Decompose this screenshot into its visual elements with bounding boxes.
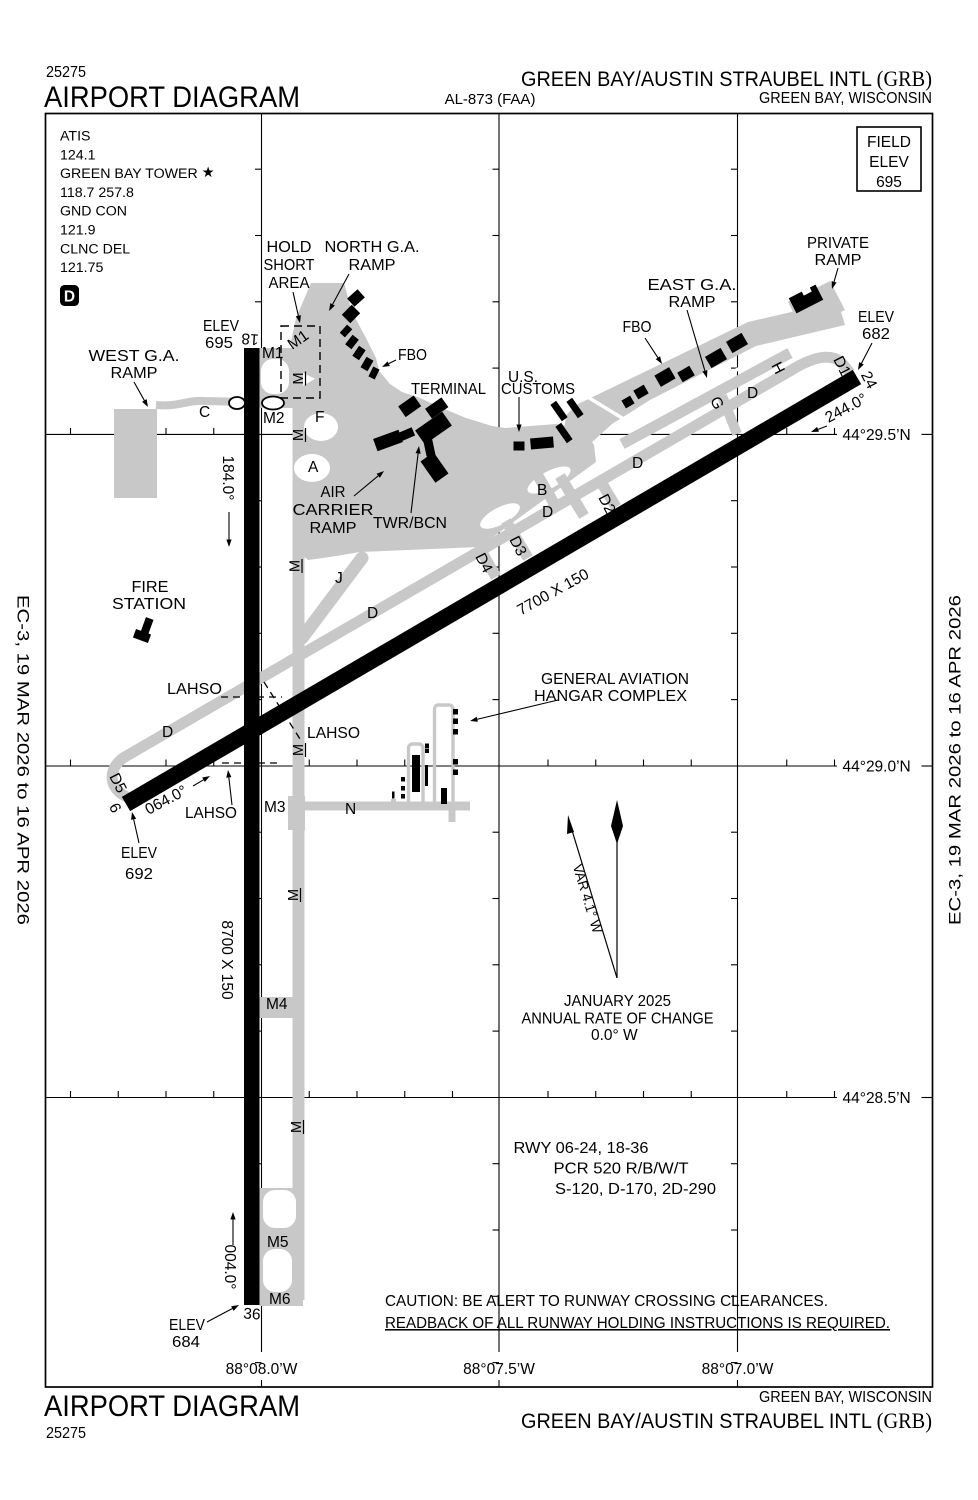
svg-text:44°28.5’N: 44°28.5’N xyxy=(843,1090,911,1107)
svg-text:CAUTION: BE ALERT TO RUNWAY CR: CAUTION: BE ALERT TO RUNWAY CROSSING CLE… xyxy=(385,1293,828,1310)
svg-text:ANNUAL RATE OF CHANGE: ANNUAL RATE OF CHANGE xyxy=(522,1011,714,1028)
svg-text:GND CON: GND CON xyxy=(60,204,127,220)
svg-text:ELEV: ELEV xyxy=(121,845,158,862)
svg-text:AIRPORT DIAGRAM: AIRPORT DIAGRAM xyxy=(44,81,300,114)
svg-text:M1: M1 xyxy=(262,345,284,362)
svg-text:M: M xyxy=(291,372,307,384)
svg-text:AL-873 (FAA): AL-873 (FAA) xyxy=(445,91,536,108)
svg-text:124.1: 124.1 xyxy=(60,147,96,163)
svg-text:GREEN BAY/AUSTIN STRAUBEL INTL: GREEN BAY/AUSTIN STRAUBEL INTL (GRB) xyxy=(521,66,932,91)
svg-text:88°07.0’W: 88°07.0’W xyxy=(702,1361,774,1378)
svg-text:READBACK OF ALL RUNWAY HOLDING: READBACK OF ALL RUNWAY HOLDING INSTRUCTI… xyxy=(385,1315,890,1332)
svg-text:ELEV: ELEV xyxy=(858,309,895,326)
svg-text:18: 18 xyxy=(241,329,259,347)
svg-text:M: M xyxy=(286,889,302,901)
svg-text:RAMP: RAMP xyxy=(349,257,396,274)
svg-text:ATIS: ATIS xyxy=(60,129,90,145)
svg-text:TERMINAL: TERMINAL xyxy=(411,381,486,398)
svg-text:GREEN BAY/AUSTIN STRAUBEL INTL: GREEN BAY/AUSTIN STRAUBEL INTL (GRB) xyxy=(521,1408,932,1433)
svg-text:EAST G.A.: EAST G.A. xyxy=(648,277,737,294)
svg-text:FBO: FBO xyxy=(623,319,652,336)
svg-text:GENERAL AVIATION: GENERAL AVIATION xyxy=(541,671,689,688)
svg-text:M: M xyxy=(291,429,307,441)
svg-text:M: M xyxy=(291,744,307,756)
svg-text:GREEN BAY, WISCONSIN: GREEN BAY, WISCONSIN xyxy=(759,90,932,107)
svg-text:J: J xyxy=(335,570,343,587)
svg-text:CUSTOMS: CUSTOMS xyxy=(501,381,575,398)
svg-text:004.0°: 004.0° xyxy=(221,1245,238,1290)
svg-text:M3: M3 xyxy=(264,799,286,816)
svg-text:STATION: STATION xyxy=(112,596,186,613)
svg-text:692: 692 xyxy=(125,866,153,883)
svg-text:88°07.5’W: 88°07.5’W xyxy=(463,1361,535,1378)
svg-text:SHORT: SHORT xyxy=(264,257,315,274)
svg-text:JANUARY 2025: JANUARY 2025 xyxy=(564,993,671,1010)
svg-text:LAHSO: LAHSO xyxy=(185,805,237,822)
svg-text:AIRPORT DIAGRAM: AIRPORT DIAGRAM xyxy=(44,1390,300,1423)
svg-text:FBO: FBO xyxy=(398,347,427,364)
svg-text:CARRIER: CARRIER xyxy=(293,502,374,519)
svg-text:FIELD: FIELD xyxy=(867,134,911,151)
svg-text:GREEN BAY TOWER ★: GREEN BAY TOWER ★ xyxy=(60,165,215,182)
svg-text:RAMP: RAMP xyxy=(815,252,862,269)
svg-text:A: A xyxy=(308,459,319,476)
svg-text:HANGAR COMPLEX: HANGAR COMPLEX xyxy=(534,688,688,705)
svg-text:682: 682 xyxy=(862,326,890,343)
svg-text:D: D xyxy=(632,455,643,472)
svg-text:8700 X 150: 8700 X 150 xyxy=(218,920,235,1000)
svg-text:D: D xyxy=(542,504,553,521)
svg-text:D: D xyxy=(162,724,173,741)
svg-text:D: D xyxy=(367,605,378,622)
svg-text:C: C xyxy=(199,404,210,421)
svg-text:LAHSO: LAHSO xyxy=(307,725,360,742)
svg-text:TWR/BCN: TWR/BCN xyxy=(373,515,447,532)
svg-text:M2: M2 xyxy=(263,410,285,427)
svg-text:695: 695 xyxy=(205,335,233,352)
svg-text:M: M xyxy=(288,560,304,572)
svg-text:25275: 25275 xyxy=(46,1425,86,1442)
svg-text:M4: M4 xyxy=(266,996,288,1013)
svg-text:LAHSO: LAHSO xyxy=(167,681,222,698)
svg-text:RAMP: RAMP xyxy=(111,365,158,382)
svg-text:RWY 06-24, 18-36: RWY 06-24, 18-36 xyxy=(514,1140,649,1157)
svg-text:44°29.0’N: 44°29.0’N xyxy=(843,759,911,776)
svg-text:684: 684 xyxy=(172,1334,200,1351)
svg-text:HOLD: HOLD xyxy=(267,239,312,256)
svg-text:118.7 257.8: 118.7 257.8 xyxy=(60,185,134,201)
svg-text:M5: M5 xyxy=(267,1234,289,1251)
svg-text:RAMP: RAMP xyxy=(669,294,716,311)
svg-text:D: D xyxy=(64,289,75,306)
svg-text:EC-3, 19 MAR 2026 to 16 APR: EC-3, 19 MAR 2026 to 16 APR 2026 xyxy=(14,595,33,925)
svg-text:WEST G.A.: WEST G.A. xyxy=(89,348,180,365)
svg-text:GREEN BAY, WISCONSIN: GREEN BAY, WISCONSIN xyxy=(759,1389,932,1406)
svg-text:ELEV: ELEV xyxy=(869,154,909,171)
svg-text:0.0° W: 0.0° W xyxy=(591,1027,638,1044)
svg-text:AIR: AIR xyxy=(321,484,346,501)
svg-text:M6: M6 xyxy=(269,1291,291,1308)
svg-text:25275: 25275 xyxy=(46,64,86,81)
svg-text:44°29.5’N: 44°29.5’N xyxy=(843,427,911,444)
svg-text:B: B xyxy=(537,482,547,499)
svg-text:88°08.0’W: 88°08.0’W xyxy=(226,1361,298,1378)
svg-text:121.75: 121.75 xyxy=(60,260,104,276)
svg-text:PRIVATE: PRIVATE xyxy=(807,235,869,252)
svg-text:AREA: AREA xyxy=(269,275,311,292)
svg-text:CLNC DEL: CLNC DEL xyxy=(60,241,130,257)
svg-text:D: D xyxy=(747,385,758,402)
svg-text:S-120, D-170, 2D-290: S-120, D-170, 2D-290 xyxy=(555,1181,716,1198)
svg-text:121.9: 121.9 xyxy=(60,223,96,239)
svg-text:ELEV: ELEV xyxy=(169,1317,206,1334)
svg-text:FIRE: FIRE xyxy=(132,579,169,596)
svg-text:PCR 520 R/B/W/T: PCR 520 R/B/W/T xyxy=(554,1161,690,1178)
svg-text:ELEV: ELEV xyxy=(203,318,240,335)
svg-text:695: 695 xyxy=(876,174,902,191)
svg-text:F: F xyxy=(315,409,324,426)
svg-text:36: 36 xyxy=(243,1305,261,1323)
svg-text:NORTH G.A.: NORTH G.A. xyxy=(325,239,420,256)
svg-text:N: N xyxy=(345,801,356,818)
svg-text:M: M xyxy=(289,1121,305,1133)
svg-text:RAMP: RAMP xyxy=(310,520,357,537)
svg-text:EC-3, 19 MAR 2026 to 16 APR: EC-3, 19 MAR 2026 to 16 APR 2026 xyxy=(946,595,965,925)
svg-text:184.0°: 184.0° xyxy=(219,456,236,501)
